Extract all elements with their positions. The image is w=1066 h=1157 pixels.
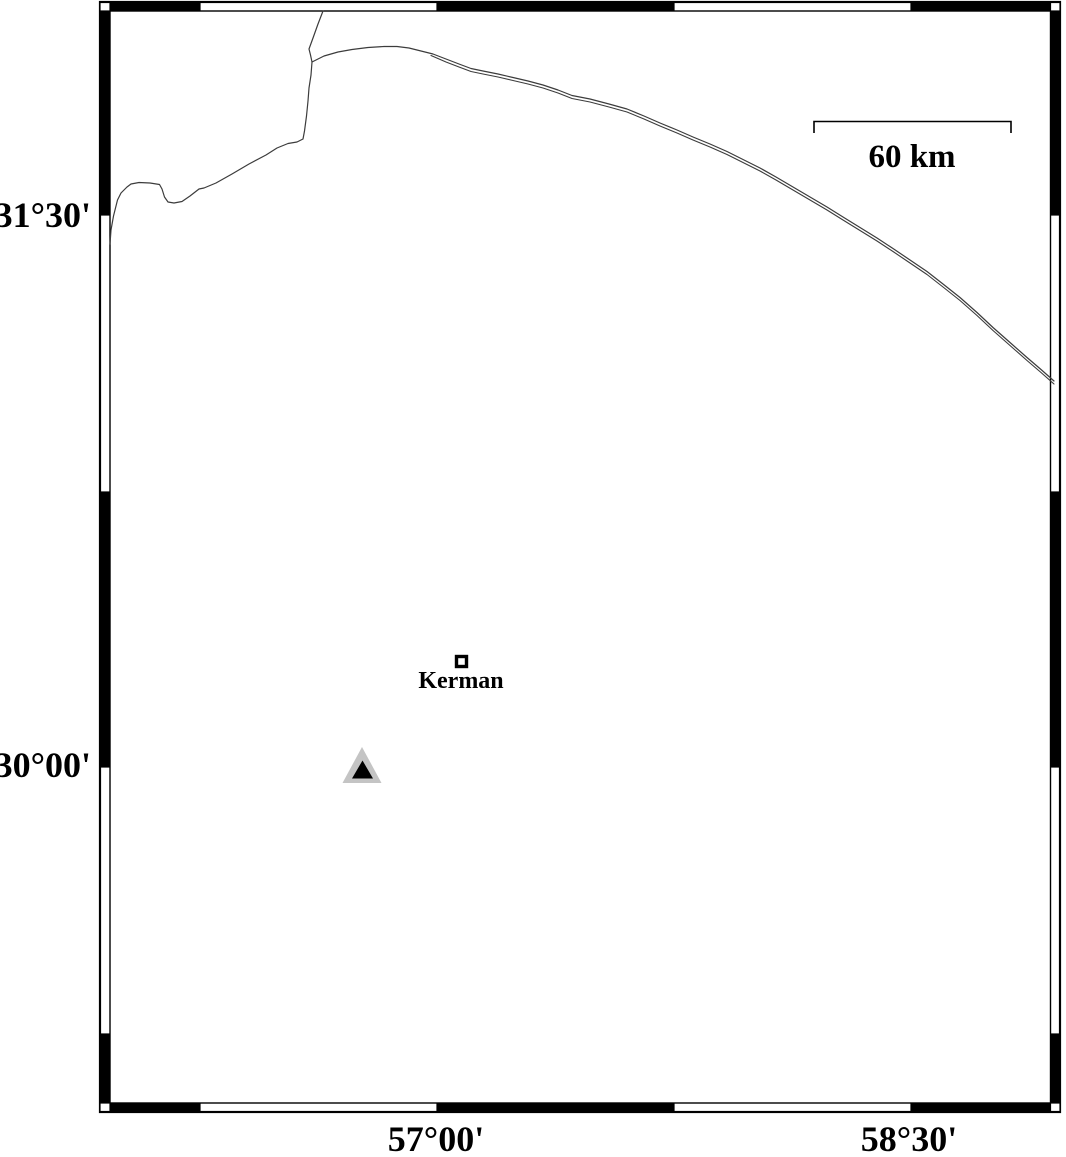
frame-tick-segment (1051, 1034, 1061, 1103)
boundary-line-east-upper (312, 47, 1054, 382)
frame-tick-segment (110, 1104, 200, 1112)
frame-tick-segment (437, 1104, 674, 1112)
map-canvas: 60 km 31°30' 30°00' 57°00' 58°30' Kerman (0, 0, 1066, 1152)
scale-bar-label: 60 km (868, 139, 955, 175)
scale-bar-bracket (814, 122, 1011, 134)
station-marker (343, 747, 382, 783)
map-lines (110, 11, 1054, 384)
lon-label-58-30: 58°30' (861, 1119, 957, 1152)
frame-tick-segment (1051, 492, 1061, 767)
city-square-icon (457, 657, 467, 667)
frame-tick-segment (911, 1104, 1051, 1112)
frame-tick-segment (911, 3, 1051, 12)
frame-tick-segment (101, 11, 111, 215)
city-marker-kerman: Kerman (418, 657, 503, 695)
lat-label-30-00: 30°00' (0, 745, 91, 785)
frame-tick-segment (101, 1034, 111, 1103)
frame-tick-segment (437, 3, 674, 12)
scale-bar: 60 km (814, 122, 1011, 176)
city-label-kerman: Kerman (418, 668, 503, 694)
boundary-line-west (110, 11, 323, 244)
boundary-line-east-lower (431, 56, 1054, 385)
lat-label-31-30: 31°30' (0, 195, 91, 235)
frame-tick-segment (1051, 11, 1061, 215)
frame-tick-segment (101, 492, 111, 767)
map-figure: 60 km 31°30' 30°00' 57°00' 58°30' Kerman (0, 0, 1066, 1152)
frame-tick-segment (110, 3, 200, 12)
lon-label-57-00: 57°00' (388, 1119, 484, 1152)
